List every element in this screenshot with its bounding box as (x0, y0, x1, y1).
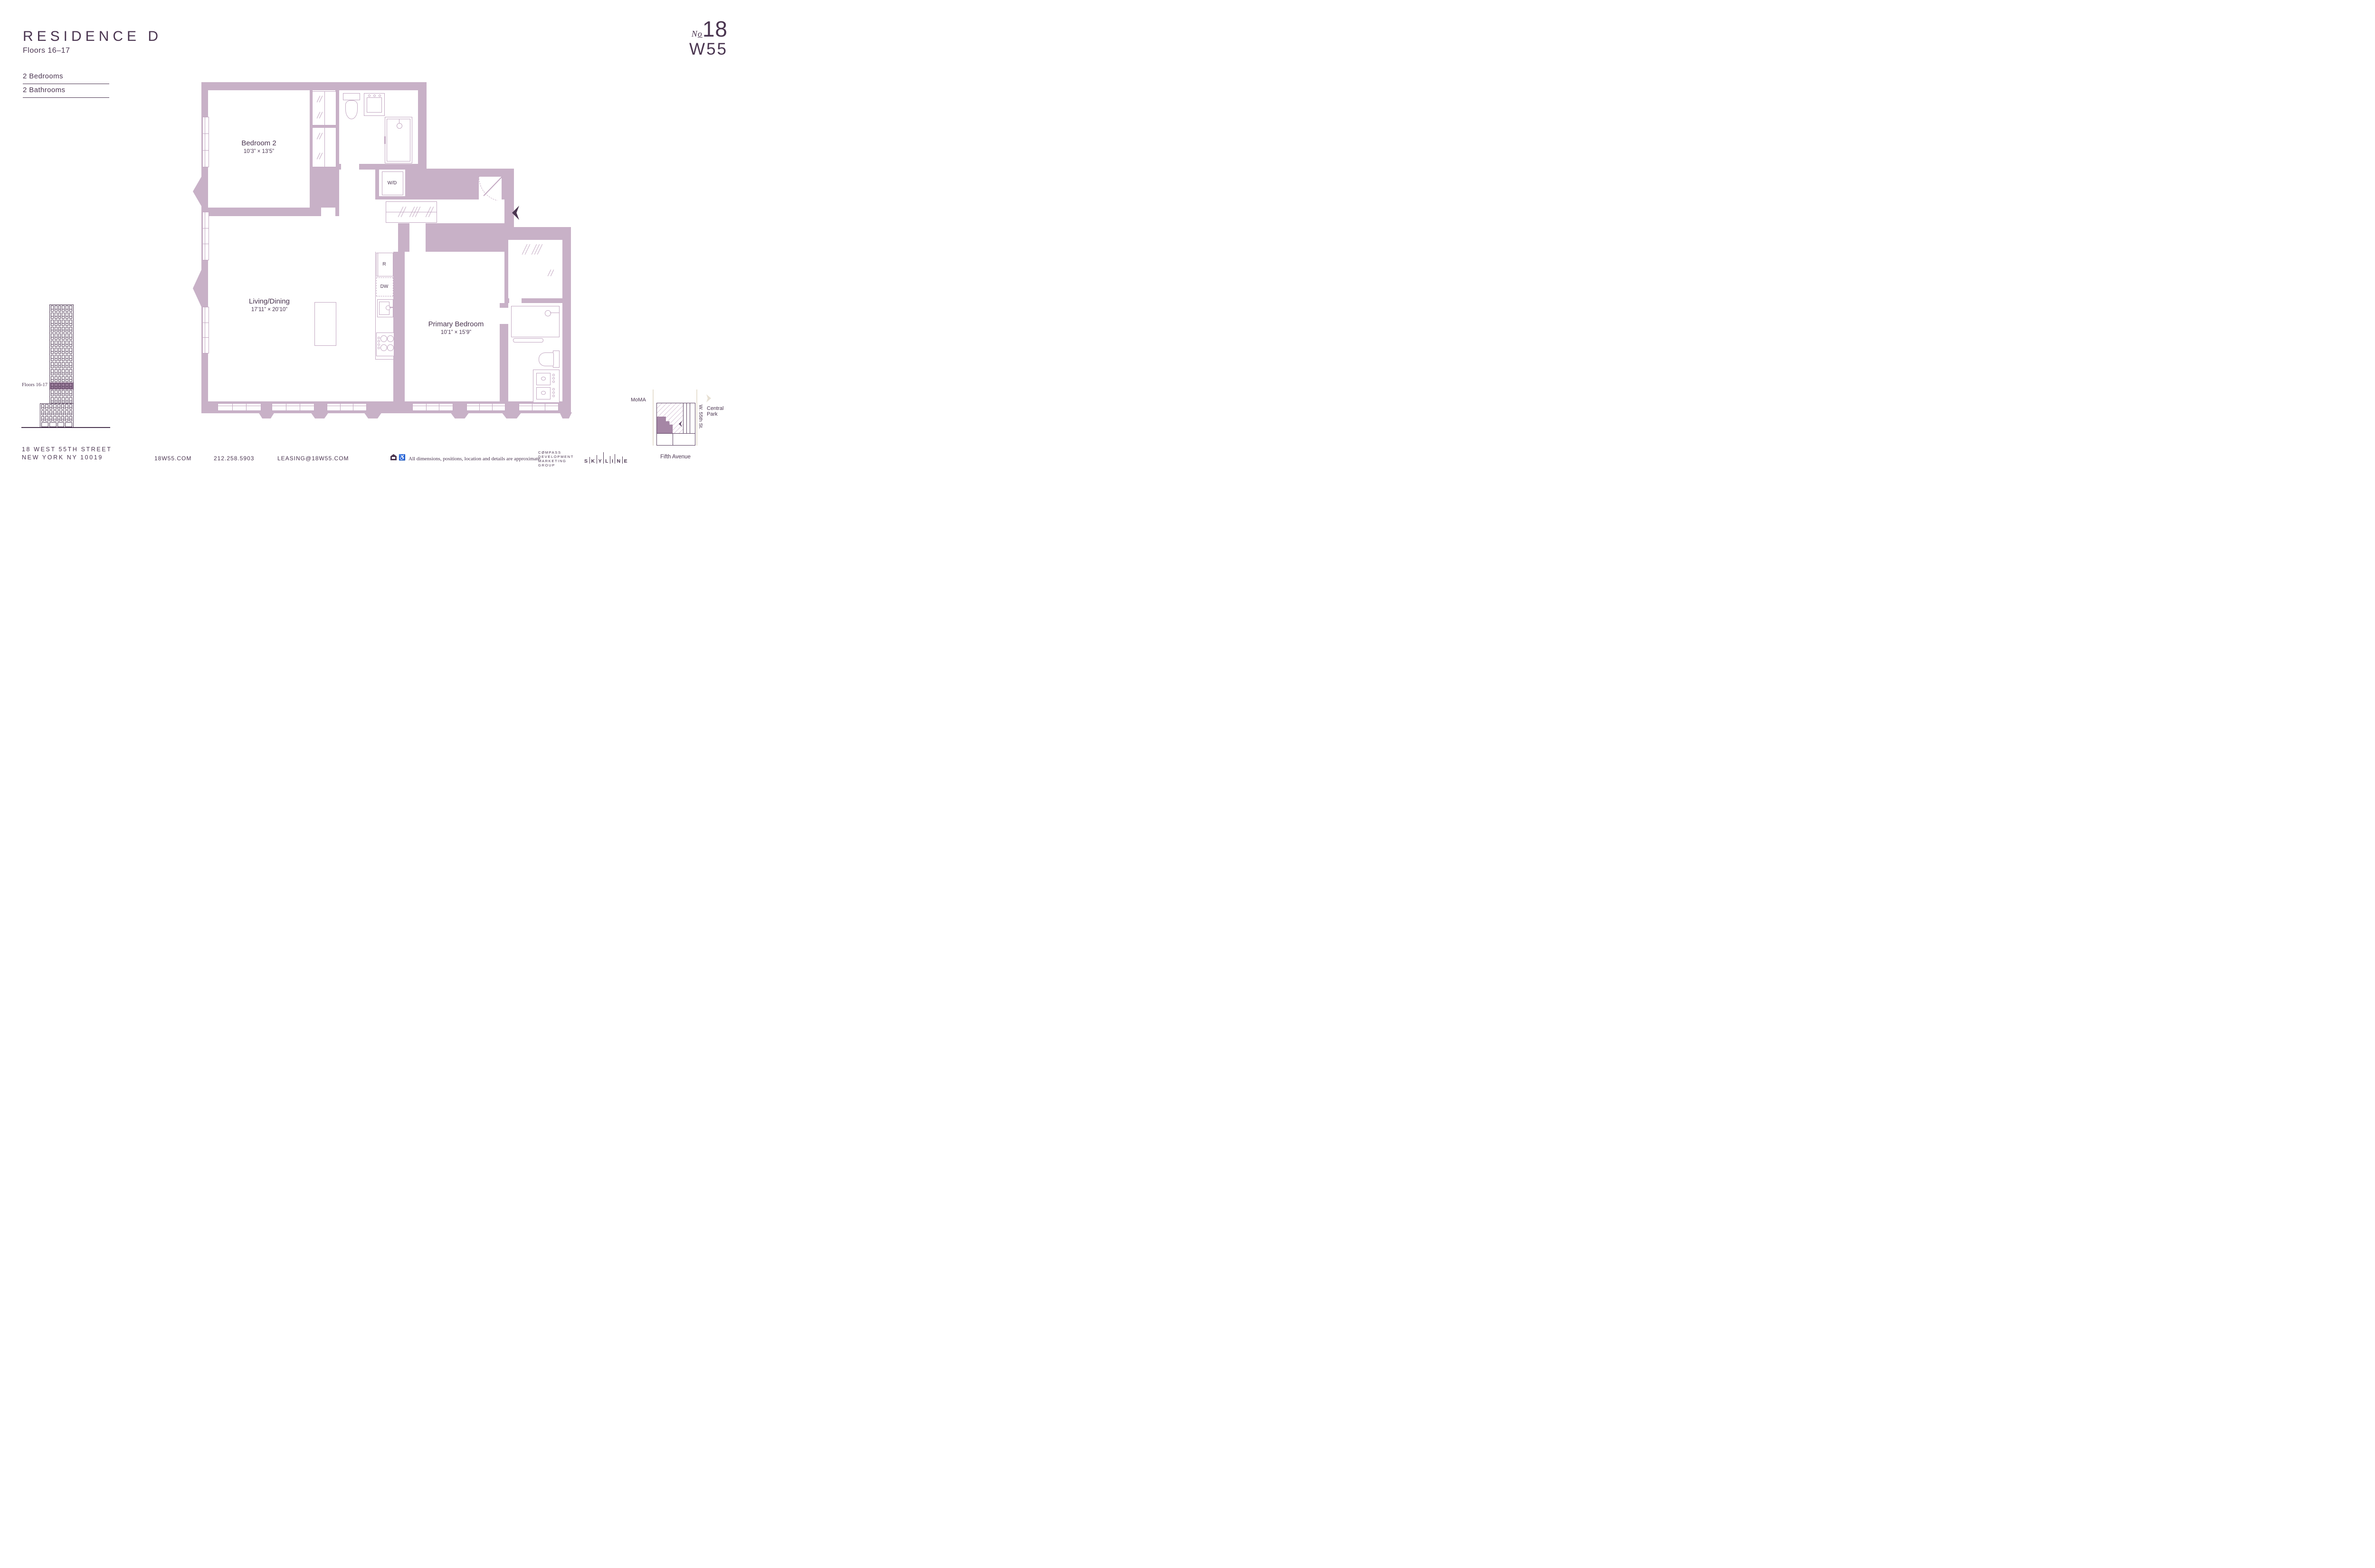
window (202, 307, 209, 353)
hall-closet (386, 201, 437, 223)
dishwasher-label: DW (376, 277, 392, 295)
compass-logo: CØMPASS DEVELOPMENT MARKETING GROUP (538, 450, 574, 467)
equal-housing-icon (390, 454, 397, 460)
facade-pier (193, 177, 201, 206)
website-link[interactable]: 18W55.COM (154, 455, 191, 462)
bedroom2-closet (312, 91, 336, 125)
accessibility-icon: ♿ (399, 455, 406, 460)
logo-w55: W55 (689, 41, 728, 57)
map-street-line (696, 390, 697, 446)
window (412, 403, 453, 411)
cooktop (376, 333, 394, 356)
bedroom2-closet (312, 127, 336, 167)
map-moma-label: MoMA (631, 397, 646, 403)
toilet-tank (553, 351, 560, 368)
logo-no-script: No (692, 29, 703, 38)
building-logo: No18 W55 (689, 18, 728, 57)
logo-line1: No18 (689, 18, 728, 40)
refrigerator-label: R (376, 253, 392, 276)
email-link[interactable]: LEASING@18W55.COM (277, 455, 349, 462)
wall-wing-jog (504, 192, 514, 240)
facade-pier (560, 412, 572, 418)
kitchen-sink (377, 299, 393, 317)
floors-subtitle: Floors 16–17 (23, 47, 70, 55)
window (202, 117, 209, 167)
washer-dryer-label: W/D (382, 171, 402, 194)
floorplan-page: RESIDENCE D Floors 16–17 2 Bedrooms 2 Ba… (0, 0, 734, 475)
vanity (533, 370, 560, 403)
building-elevation-base (40, 403, 74, 428)
map-block (656, 403, 695, 446)
facade-pier (502, 412, 522, 418)
page-title: RESIDENCE D (23, 29, 162, 45)
window (466, 403, 505, 411)
wall-bedroom2-bottom (208, 208, 339, 216)
wall-right (562, 227, 571, 413)
kitchen-counter-end (375, 359, 393, 360)
map-street-line (653, 390, 654, 446)
wall-under-closets (310, 167, 339, 208)
facade-pier (258, 412, 275, 418)
building-floors-label: Floors 16-17 (18, 382, 47, 388)
kitchen-counter-edge (375, 252, 376, 359)
wall-kitchen-divider (393, 252, 405, 401)
wall-bath-right (418, 82, 427, 177)
walkin-closet (508, 240, 562, 298)
ground-line (21, 427, 110, 428)
building-elevation-tower (49, 304, 74, 404)
shower-primary (511, 306, 560, 337)
disclaimer: All dimensions, positions, location and … (408, 456, 541, 462)
bedrooms-spec: 2 Bedrooms (23, 72, 109, 84)
primary-door-opening (409, 223, 426, 252)
bath1-door-opening (341, 164, 359, 170)
toilet-bowl (345, 100, 358, 119)
window (272, 403, 314, 411)
facade-pier (193, 270, 201, 307)
footer-address: 18 WEST 55TH STREET NEW YORK NY 10019 (22, 446, 112, 462)
primary-label: Primary Bedroom 10’1” × 15’9” (408, 320, 503, 335)
living-label: Living/Dining 17’11” × 20’10” (222, 297, 317, 313)
window (327, 403, 367, 411)
shower (385, 117, 412, 163)
wall-closet-bed-divider (504, 240, 508, 298)
bathrooms-spec: 2 Bathrooms (23, 86, 109, 98)
facade-pier (364, 412, 382, 418)
facade-pier (311, 412, 329, 418)
bedroom2-label: Bedroom 2 10’3” × 13’5” (211, 139, 306, 154)
bathroom-sink (364, 93, 385, 116)
skyline-logo: S K Y L I N E (584, 452, 627, 464)
closet-door-opening (509, 298, 522, 303)
phone-link[interactable]: 212.258.5903 (214, 455, 254, 462)
map-park-arrow-icon (706, 394, 711, 402)
wall-top (204, 82, 427, 90)
window (519, 403, 559, 411)
map-central-park-label: Central Park (707, 406, 729, 417)
map-street-label: W. 55th St. (698, 405, 703, 445)
logo-number: 18 (703, 17, 728, 41)
kitchen-island (314, 302, 336, 346)
toilet-tank (343, 93, 360, 100)
bedroom2-door-opening (321, 208, 335, 216)
window (218, 403, 261, 411)
window (202, 212, 209, 260)
facade-pier (450, 412, 469, 418)
toilet-bowl (539, 352, 554, 366)
map-avenue-label: Fifth Avenue (655, 454, 695, 460)
towel-bar (513, 338, 543, 342)
